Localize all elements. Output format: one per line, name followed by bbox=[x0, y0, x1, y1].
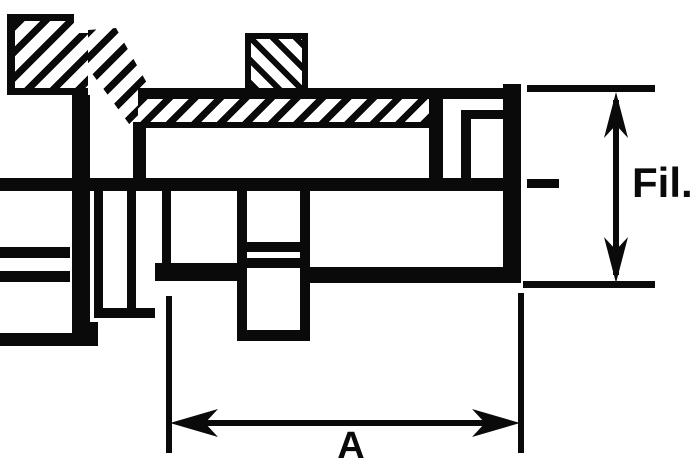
fil-arrowhead-up bbox=[604, 92, 628, 138]
a-arrowhead-left bbox=[170, 409, 218, 437]
fil-arrowhead-down bbox=[604, 237, 628, 283]
a-arrowhead-right bbox=[472, 409, 520, 437]
fitting-section-drawing: Fil. A bbox=[0, 0, 700, 469]
dimension-arrowheads bbox=[0, 0, 700, 469]
